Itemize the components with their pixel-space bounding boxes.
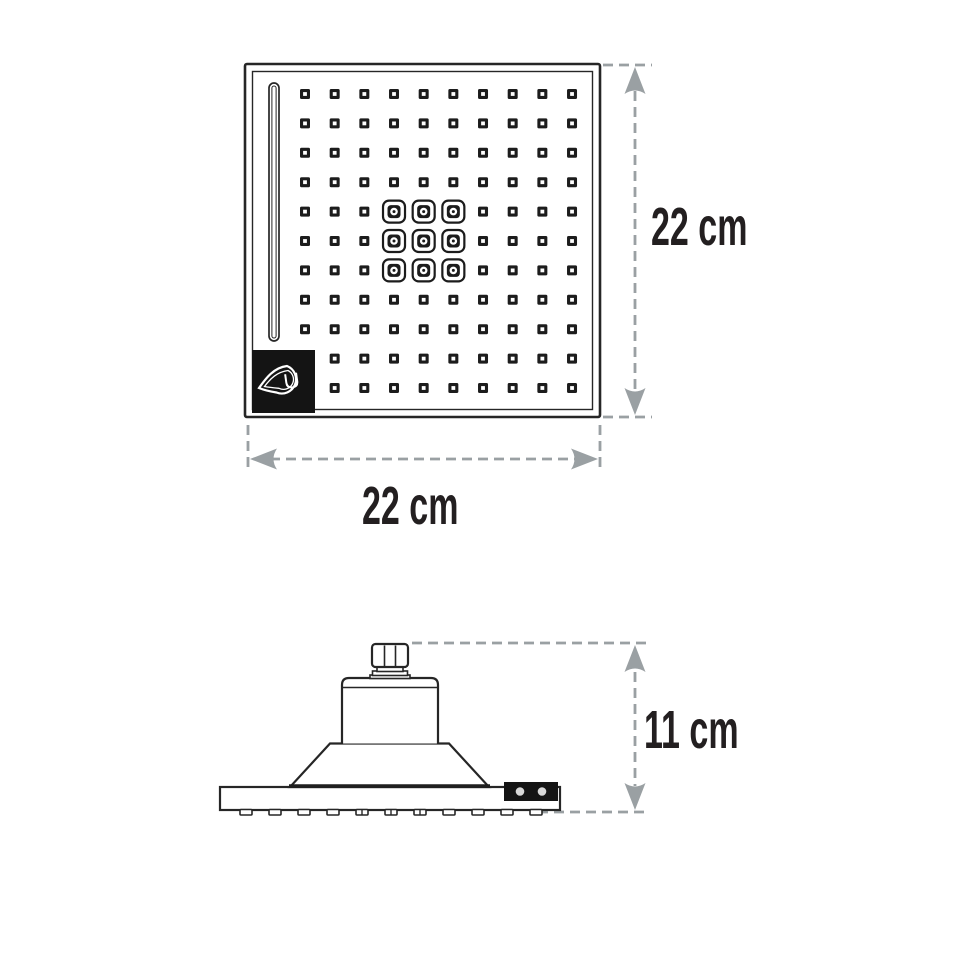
jet-nozzle xyxy=(537,265,547,275)
jet-nozzle xyxy=(419,118,429,128)
jet-nozzle xyxy=(389,383,399,393)
jet-nozzle xyxy=(508,177,518,187)
jet-nozzle xyxy=(300,265,310,275)
jet-nozzle xyxy=(419,324,429,334)
large-jet-nozzle xyxy=(413,259,435,281)
jet-nozzle xyxy=(448,89,458,99)
jet-nozzle xyxy=(448,324,458,334)
side-view-drawing xyxy=(210,630,660,830)
jet-nozzle xyxy=(359,148,369,158)
jet-nozzle xyxy=(389,295,399,305)
arrow-left-icon xyxy=(250,449,277,470)
jet-nozzle xyxy=(330,148,340,158)
jet-nozzle xyxy=(300,236,310,246)
jet-nozzle xyxy=(537,89,547,99)
jet-nozzle xyxy=(537,177,547,187)
jet-nozzle xyxy=(537,236,547,246)
jet-nozzle xyxy=(478,265,488,275)
front-view-drawing xyxy=(240,55,660,475)
jet-nozzle xyxy=(330,207,340,217)
jet-nozzle xyxy=(389,324,399,334)
cone-body xyxy=(290,744,489,788)
jet-nozzle xyxy=(359,354,369,364)
brand-tab xyxy=(504,782,558,801)
jet-nozzle xyxy=(300,118,310,128)
jet-nozzle xyxy=(300,207,310,217)
jet-nozzle xyxy=(300,324,310,334)
jet-nozzle xyxy=(300,89,310,99)
nozzle-bump xyxy=(414,810,426,816)
jet-nozzle xyxy=(330,118,340,128)
jet-nozzle xyxy=(567,265,577,275)
jet-nozzle xyxy=(537,207,547,217)
large-jet-nozzle xyxy=(442,230,464,252)
jet-nozzle xyxy=(537,118,547,128)
jet-nozzle xyxy=(359,324,369,334)
brand-logo-plate xyxy=(252,350,315,413)
jet-nozzle xyxy=(567,236,577,246)
jet-nozzle xyxy=(567,89,577,99)
jet-nozzle xyxy=(567,207,577,217)
jet-nozzle xyxy=(537,148,547,158)
jet-nozzle xyxy=(478,354,488,364)
jet-nozzle xyxy=(359,236,369,246)
arrow-down-icon xyxy=(625,783,646,810)
jet-nozzle xyxy=(359,383,369,393)
arrow-right-icon xyxy=(571,449,598,470)
jet-nozzle xyxy=(537,383,547,393)
jet-nozzle xyxy=(389,89,399,99)
jet-nozzle xyxy=(389,354,399,364)
jet-nozzle xyxy=(448,354,458,364)
jet-nozzle xyxy=(389,177,399,187)
jet-nozzle xyxy=(359,177,369,187)
jet-nozzle xyxy=(330,354,340,364)
tab-dot xyxy=(516,787,525,796)
large-jet-nozzle xyxy=(442,201,464,223)
jet-nozzle xyxy=(508,148,518,158)
arrow-up-icon xyxy=(625,645,646,672)
jet-nozzle xyxy=(448,383,458,393)
jet-nozzle xyxy=(419,383,429,393)
nozzle-bump xyxy=(443,810,455,816)
jet-nozzle xyxy=(537,354,547,364)
jet-nozzle xyxy=(300,148,310,158)
nozzle-bump xyxy=(472,810,484,816)
jet-nozzle xyxy=(537,295,547,305)
large-jet-nozzle xyxy=(383,230,405,252)
jet-nozzle xyxy=(567,177,577,187)
jet-nozzle xyxy=(537,324,547,334)
jet-nozzle xyxy=(389,148,399,158)
jet-nozzle xyxy=(300,177,310,187)
large-jet-nozzle xyxy=(413,230,435,252)
nozzle-bump xyxy=(298,810,310,816)
jet-nozzle xyxy=(448,295,458,305)
jet-nozzle xyxy=(448,177,458,187)
jet-nozzle xyxy=(567,295,577,305)
nozzle-bump xyxy=(385,810,397,816)
jet-nozzle xyxy=(330,265,340,275)
jet-nozzle xyxy=(508,324,518,334)
jet-nozzle xyxy=(330,236,340,246)
jet-nozzle xyxy=(478,383,488,393)
jet-nozzle xyxy=(508,89,518,99)
jet-nozzle xyxy=(508,383,518,393)
jet-nozzle xyxy=(567,324,577,334)
large-jet-nozzle xyxy=(413,201,435,223)
jet-nozzle xyxy=(508,118,518,128)
jet-nozzle xyxy=(567,148,577,158)
neck-cylinder xyxy=(342,678,438,744)
water-slot xyxy=(269,83,279,341)
jet-nozzle xyxy=(478,236,488,246)
front-width-dimension xyxy=(248,425,600,470)
jet-nozzle xyxy=(567,354,577,364)
jet-nozzle xyxy=(419,354,429,364)
jet-nozzle xyxy=(478,89,488,99)
jet-nozzle xyxy=(419,148,429,158)
jet-nozzle xyxy=(508,236,518,246)
jet-nozzle xyxy=(508,354,518,364)
front-height-label: 22 cm xyxy=(651,200,747,254)
jet-nozzle xyxy=(359,265,369,275)
nozzle-bump xyxy=(327,810,339,816)
jet-nozzle xyxy=(478,207,488,217)
jet-nozzle xyxy=(330,89,340,99)
arrow-down-icon xyxy=(625,388,646,415)
large-jet-nozzle xyxy=(383,201,405,223)
jet-nozzle xyxy=(508,295,518,305)
jet-nozzle xyxy=(330,295,340,305)
jet-nozzle xyxy=(359,295,369,305)
collar xyxy=(370,667,410,679)
large-jet-nozzle xyxy=(383,259,405,281)
jet-nozzle xyxy=(478,118,488,128)
jet-nozzle xyxy=(359,207,369,217)
jet-nozzle xyxy=(567,383,577,393)
jet-nozzle xyxy=(419,295,429,305)
product-dimension-diagram: 22 cm 22 cm 11 cm xyxy=(0,0,969,969)
arrow-up-icon xyxy=(625,67,646,94)
jet-nozzle xyxy=(508,265,518,275)
jet-nozzle xyxy=(330,324,340,334)
jet-nozzle xyxy=(300,295,310,305)
nozzle-bump xyxy=(356,810,368,816)
jet-nozzle xyxy=(448,148,458,158)
front-height-dimension xyxy=(603,65,652,417)
nozzle-bump xyxy=(240,810,252,816)
jet-nozzle xyxy=(478,148,488,158)
nozzle-bump xyxy=(530,810,542,816)
jet-nozzle xyxy=(330,177,340,187)
jet-nozzle xyxy=(419,177,429,187)
jet-nozzle xyxy=(508,207,518,217)
connector-nut xyxy=(372,644,408,667)
jet-nozzle xyxy=(389,118,399,128)
jet-nozzle xyxy=(359,89,369,99)
jet-nozzle xyxy=(448,118,458,128)
jet-nozzle xyxy=(359,118,369,128)
front-width-label: 22 cm xyxy=(362,479,458,533)
jet-nozzle xyxy=(478,177,488,187)
nozzle-bump xyxy=(501,810,513,816)
jet-nozzle xyxy=(478,324,488,334)
jet-nozzle xyxy=(567,118,577,128)
jet-nozzle xyxy=(419,89,429,99)
side-height-label: 11 cm xyxy=(644,703,739,757)
jet-nozzle xyxy=(478,295,488,305)
tab-dot xyxy=(538,787,547,796)
jet-nozzle xyxy=(330,383,340,393)
large-jet-nozzle xyxy=(442,259,464,281)
nozzle-bump xyxy=(269,810,281,816)
